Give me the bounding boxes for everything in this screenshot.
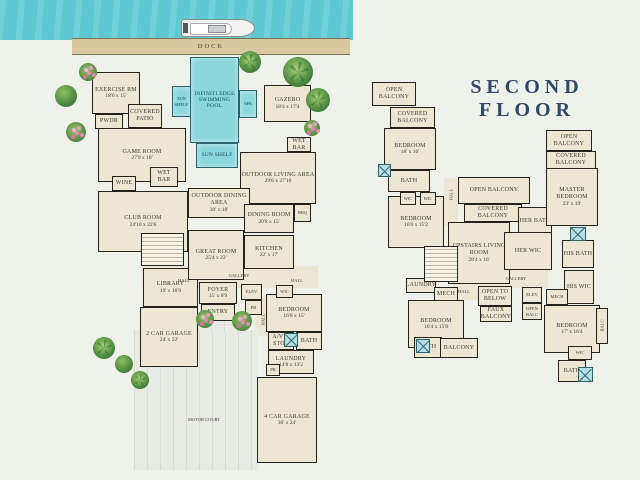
open-to-below-label: OPEN TO BELOW [479, 289, 511, 302]
wet-bar-2-label: WET BAR [288, 138, 310, 151]
shower-2 [570, 227, 586, 241]
bbq-label: BBQ [298, 210, 307, 215]
library-dims: 19' x 16'9 [160, 288, 181, 294]
gallery-2: GALLERY [496, 274, 536, 284]
gazebo-label: GAZEBO [275, 97, 301, 104]
dining-room: DINING ROOM20'8 x 15' [244, 204, 294, 233]
balcony-1-label: BALCONY [444, 345, 474, 352]
spa: SPA [239, 90, 257, 118]
flower-plant-icon [196, 310, 214, 328]
outdoor-living: OUTDOOR LIVING AREA29'6 x 27'10 [240, 152, 316, 204]
open-balcony-3-label: OPEN BALCONY [547, 134, 591, 147]
stairs-1 [141, 233, 184, 266]
his-bath: HIS BATH [562, 240, 594, 268]
pr-2: PR [266, 364, 280, 376]
master-bedroom-label: MASTER BEDROOM [547, 187, 597, 200]
boat-stern [183, 23, 188, 33]
hall-2-label: HALL [291, 278, 303, 283]
hall-vert: HALL [258, 306, 268, 334]
great-room-label: GREAT ROOM [196, 249, 237, 256]
outdoor-living-dims: 29'6 x 27'10 [265, 178, 292, 184]
mech-1-label: MECH [550, 294, 563, 299]
bedroom-1-dims: 16'8 x 15' [283, 313, 304, 319]
elev-label: ELEV [246, 289, 258, 294]
shower-3 [416, 339, 430, 353]
palm-plant-icon [239, 51, 261, 73]
wine: WINE [112, 176, 136, 191]
bedroom-18x16-dims: 18' x 16' [401, 149, 419, 155]
gallery-2-label: GALLERY [506, 276, 527, 281]
bath-2-label: BATH [401, 178, 417, 185]
bath-1-label: BATH [301, 338, 317, 345]
boat [181, 19, 255, 37]
wic-2: WIC [568, 346, 592, 360]
game-room-label: GAME ROOM [123, 149, 162, 156]
hall-1-label: HALL [178, 278, 190, 283]
dock-label: DOCK [198, 43, 224, 50]
gazebo-dims: 18'4 x 17'4 [276, 104, 300, 110]
shower-4 [578, 367, 593, 382]
his-wic-label: HIS WIC [567, 284, 591, 291]
wic-1-label: WIC [280, 289, 289, 294]
wic-b-label: WIC [424, 196, 433, 201]
elev-2-label: ELEV [526, 292, 538, 297]
great-room-dims: 25'4 x 22' [205, 255, 226, 261]
open-balcony-2: OPEN BALCONY [458, 177, 530, 204]
foyer-dims: 15' x 8'9 [209, 293, 227, 299]
master-bedroom-dims: 23' x 19' [563, 201, 581, 207]
his-wic: HIS WIC [564, 270, 594, 304]
two-car-garage: 2 CAR GARAGE24' x 22' [140, 307, 198, 367]
bedroom-18x16: BEDROOM18' x 16' [384, 128, 436, 170]
second-floor-title: SECOND FLOOR [430, 76, 624, 122]
bath-1: BATH [296, 332, 322, 350]
outdoor-dining-dims: 30' x 18' [210, 207, 228, 213]
hall-vert-label: HALL [260, 314, 265, 326]
elev-2: ELEV [522, 287, 542, 303]
bush-plant-icon [115, 355, 133, 373]
motor-court-label: MOTOR COURT [166, 414, 242, 425]
bedroom-17x164-dims: 17' x 16'4 [561, 329, 582, 335]
open-balc: OPEN BALC [522, 303, 542, 320]
open-balcony-3: OPEN BALCONY [546, 130, 592, 151]
open-balc-label: OPEN BALC [523, 306, 541, 316]
pool: INFINITI EDGE SWIMMING POOL [190, 57, 239, 143]
four-car-garage: 4 CAR GARAGE36' x 24' [257, 377, 317, 463]
bath-2: BATH [388, 170, 430, 192]
two-car-garage-label: 2 CAR GARAGE [146, 331, 192, 338]
gallery-1-label: GALLERY [229, 273, 250, 278]
wic-1: WIC [276, 285, 293, 298]
covered-balcony-1: COVERED BALCONY [390, 107, 435, 128]
faux-balcony: FAUX BALCONY [480, 306, 512, 322]
her-wic: HER WIC [504, 232, 552, 270]
hall-3-label: HALL [458, 289, 470, 294]
elev: ELEV [241, 284, 262, 300]
upstairs-living-label: UPSTAIRS LIVING ROOM [449, 243, 509, 256]
pwdr: PWDR [95, 114, 123, 129]
hall-2: HALL [283, 276, 311, 286]
four-car-garage-dims: 36' x 24' [278, 420, 296, 426]
covered-balcony-2-label: COVERED BALCONY [465, 206, 521, 219]
covered-balcony-3-label: COVERED BALCONY [547, 153, 595, 166]
upstairs-living-dims: 28'4 x 16' [468, 257, 489, 263]
outdoor-living-label: OUTDOOR LIVING AREA [242, 172, 315, 179]
stairs-2 [424, 246, 458, 282]
boat-cabin [208, 25, 226, 33]
his-bath-label: HIS BATH [564, 251, 592, 258]
pr-1-label: PR [251, 305, 257, 310]
floor-plan-page: DOCK SECOND FLOOR EXERCISE RM18'6 x 15'P… [0, 0, 640, 480]
hall-vert-2-label: HALL [448, 189, 453, 201]
spa-label: SPA [244, 101, 252, 106]
her-wic-label: HER WIC [515, 248, 541, 255]
open-balcony-1-label: OPEN BALCONY [373, 87, 415, 100]
balc-strip-label: BALC [599, 320, 604, 332]
balc-strip: BALC [596, 308, 608, 344]
wine-label: WINE [116, 180, 132, 187]
covered-patio-label: COVERED PATIO [129, 109, 161, 122]
covered-balcony-2: COVERED BALCONY [464, 204, 522, 222]
outdoor-dining-label: OUTDOOR DINING AREA [189, 193, 249, 206]
dining-room-dims: 20'8 x 15' [258, 219, 279, 225]
flower-plant-icon [304, 120, 320, 136]
wic-b: WIC [420, 192, 436, 205]
bush-plant-icon [55, 85, 77, 107]
bedroom-166x152-label: BEDROOM [400, 216, 431, 223]
foyer-label: FOYER [208, 287, 229, 294]
four-car-garage-label: 4 CAR GARAGE [264, 414, 310, 421]
balcony-1: BALCONY [440, 338, 478, 358]
bedroom-1-label: BEDROOM [278, 307, 309, 314]
wet-bar-2: WET BAR [287, 137, 311, 152]
laundry-2-label: LAUNDRY [406, 282, 436, 289]
bedroom-164x158-dims: 16'4 x 15'8 [424, 324, 448, 330]
sun-shelf-left: SUN SHELF [172, 86, 191, 117]
hall-3: HALL [452, 287, 476, 297]
kitchen-label: KITCHEN [255, 246, 283, 253]
open-balcony-2-label: OPEN BALCONY [470, 187, 519, 194]
exercise-rm-dims: 18'6 x 15' [105, 93, 126, 99]
hall-vert-2: HALL [446, 182, 456, 208]
flower-plant-icon [66, 122, 86, 142]
wic-2-label: WIC [576, 350, 585, 355]
wic-a-label: WIC [404, 196, 413, 201]
dock-strip: DOCK [72, 38, 350, 55]
kitchen: KITCHEN22' x 17' [244, 235, 294, 269]
pool-label: INFINITI EDGE SWIMMING POOL [191, 91, 238, 109]
mech-1: MECH [546, 289, 568, 305]
outdoor-dining: OUTDOOR DINING AREA30' x 18' [188, 188, 250, 218]
shower-5 [378, 164, 391, 177]
bbq: BBQ [294, 204, 311, 222]
hall-1: HALL [170, 276, 198, 286]
club-room-label: CLUB ROOM [124, 215, 161, 222]
open-to-below: OPEN TO BELOW [478, 286, 512, 306]
covered-patio: COVERED PATIO [128, 104, 162, 128]
sun-shelf-left-label: SUN SHELF [173, 96, 190, 106]
wet-bar-1: WET BAR [150, 167, 178, 187]
wet-bar-1-label: WET BAR [151, 170, 177, 183]
wic-a: WIC [400, 192, 416, 205]
bedroom-18x16-label: BEDROOM [394, 143, 425, 150]
bedroom-17x164-label: BEDROOM [556, 323, 587, 330]
master-bedroom: MASTER BEDROOM23' x 19' [546, 168, 598, 226]
palm-plant-icon [131, 371, 149, 389]
gazebo: GAZEBO18'4 x 17'4 [264, 85, 311, 122]
sun-shelf-bottom-label: SUN SHELF [202, 152, 233, 158]
pr-2-label: PR [270, 367, 276, 372]
motor-court-label-label: MOTOR COURT [188, 417, 220, 422]
laundry-label: LAUNDRY [276, 356, 306, 363]
palm-plant-icon [306, 88, 330, 112]
sun-shelf-bottom: SUN SHELF [196, 143, 238, 168]
water [0, 0, 353, 40]
bedroom-1: BEDROOM16'8 x 15' [266, 294, 322, 332]
kitchen-dims: 22' x 17' [260, 252, 278, 258]
flower-plant-icon [79, 63, 97, 81]
open-balcony-1: OPEN BALCONY [372, 82, 416, 106]
covered-balcony-3: COVERED BALCONY [546, 151, 596, 169]
bedroom-166x152-dims: 16'6 x 15'2 [404, 222, 428, 228]
exercise-rm-label: EXERCISE RM [95, 87, 137, 94]
gallery-1: GALLERY [221, 271, 257, 281]
pwdr-label: PWDR [100, 118, 118, 125]
laundry-dims: 14'8 x 13'2 [279, 362, 303, 368]
palm-plant-icon [283, 57, 313, 87]
game-room-dims: 27'9 x 18' [131, 155, 152, 161]
flower-plant-icon [232, 311, 252, 331]
faux-balcony-label: FAUX BALCONY [481, 307, 511, 320]
two-car-garage-dims: 24' x 22' [160, 337, 178, 343]
shower-1 [284, 333, 298, 347]
palm-plant-icon [93, 337, 115, 359]
dining-room-label: DINING ROOM [247, 212, 290, 219]
foyer: FOYER15' x 8'9 [199, 282, 237, 304]
club-room-dims: 24'10 x 22'6 [130, 222, 157, 228]
covered-balcony-1-label: COVERED BALCONY [391, 111, 434, 124]
bedroom-164x158-label: BEDROOM [420, 318, 451, 325]
